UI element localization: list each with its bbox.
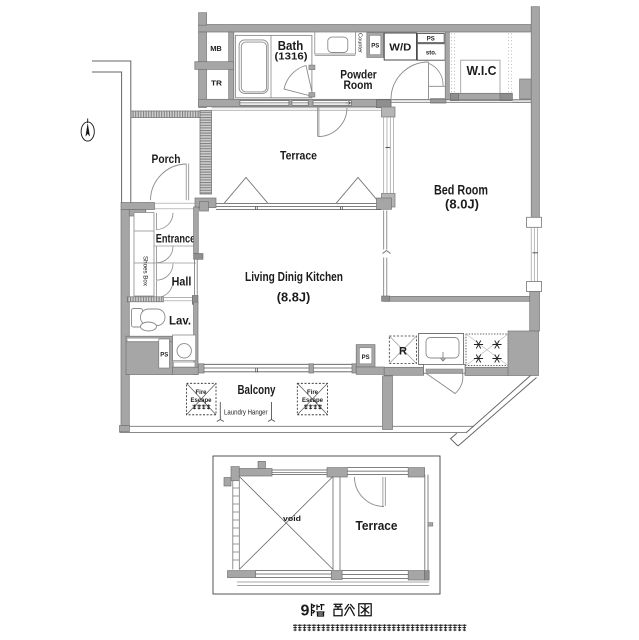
svg-text:R: R (399, 346, 407, 358)
svg-text:Porch: Porch (152, 154, 181, 166)
svg-text:Terrace: Terrace (280, 149, 317, 163)
svg-text:PS: PS (427, 37, 435, 43)
svg-text:TR: TR (211, 81, 222, 88)
svg-text:sto.: sto. (426, 51, 437, 57)
svg-text:Fire: Fire (195, 390, 207, 396)
svg-text:PS: PS (160, 353, 168, 359)
svg-text:(1316): (1316) (275, 51, 308, 63)
svg-text:Escape: Escape (190, 398, 212, 404)
svg-text:Hall: Hall (172, 277, 192, 289)
svg-text:MB: MB (210, 46, 222, 53)
svg-text:W.I.C: W.I.C (467, 64, 497, 78)
svg-text:Shoes Box: Shoes Box (142, 256, 149, 287)
svg-text:(8.0J): (8.0J) (445, 198, 479, 212)
svg-text:void: void (283, 516, 301, 523)
svg-text:Escape: Escape (302, 398, 324, 404)
svg-text:9: 9 (301, 603, 310, 620)
svg-text:Lav.: Lav. (169, 316, 191, 328)
svg-text:W/D: W/D (389, 42, 411, 54)
svg-text:(8.8J): (8.8J) (277, 290, 311, 305)
svg-text:PS: PS (362, 355, 370, 361)
svg-text:Living Dinig Kitchen: Living Dinig Kitchen (245, 269, 343, 284)
svg-text:Counter: Counter (357, 33, 363, 53)
svg-text:PS: PS (371, 44, 379, 50)
svg-text:Balcony: Balcony (238, 383, 276, 397)
svg-text:Bed Room: Bed Room (434, 183, 488, 198)
svg-text:Fire: Fire (307, 390, 319, 396)
svg-text:Laundry Hanger: Laundry Hanger (224, 410, 268, 417)
svg-text:Entrance: Entrance (156, 234, 196, 246)
svg-text:Room: Room (344, 80, 373, 92)
svg-text:Terrace: Terrace (356, 518, 398, 533)
